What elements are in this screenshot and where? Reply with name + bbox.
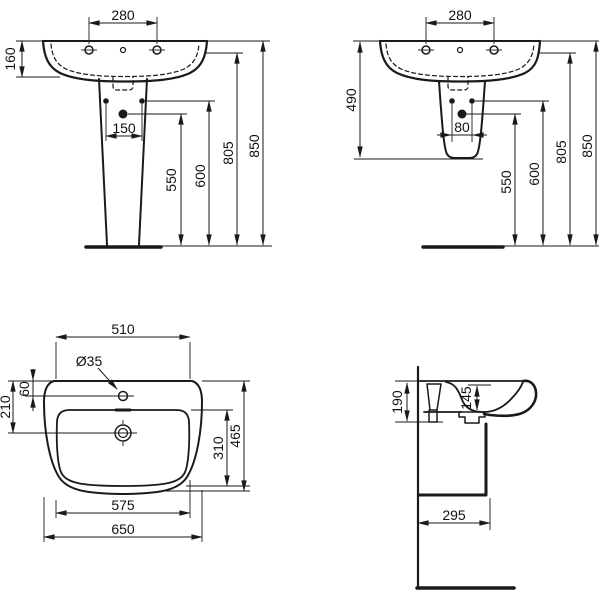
basin-inner-rim-dashed	[386, 44, 534, 77]
dim-label-outlet-offset: 210	[0, 395, 13, 419]
outlet-point	[458, 110, 467, 119]
drawing-canvas: 280 160 150 550 600 805 850	[0, 0, 600, 600]
dim-label-taphole-diameter: Ø35	[76, 353, 103, 369]
view-front-full-pedestal: 280 160 150 550 600 805 850	[2, 7, 272, 247]
dim-label-top-width: 510	[111, 321, 135, 337]
dim-label-overall-depth: 465	[227, 424, 243, 448]
dim-label-taphole-spacing: 280	[111, 7, 135, 23]
view-plan: 510 Ø35 60 210 310 465 575 650	[0, 321, 250, 542]
dim-label-rim-height: 850	[246, 134, 262, 158]
dim-label-front-height: 160	[2, 47, 18, 71]
semi-pedestal-profile	[419, 424, 486, 495]
fixing-hole-right	[469, 98, 475, 104]
dim-label-depth-projection: 295	[442, 507, 466, 523]
pedestal-left-edge	[99, 79, 107, 245]
fixing-hole-left	[449, 98, 455, 104]
dim-label-rim-height: 850	[579, 134, 595, 158]
dim-label-taphole-height: 805	[220, 141, 236, 165]
dim-label-pedestal-height: 490	[343, 88, 359, 112]
dim-label-overall-width: 650	[111, 521, 135, 537]
overflow-hole	[121, 48, 126, 53]
technical-drawing: 280 160 150 550 600 805 850	[0, 0, 600, 600]
fixing-hole-right	[139, 98, 145, 104]
pedestal-right-edge	[139, 79, 147, 245]
dim-label-fixing-height: 600	[192, 164, 208, 188]
basin-outline	[43, 41, 207, 82]
waste-dashed	[448, 77, 468, 90]
dim-label-outlet-height: 550	[498, 170, 514, 194]
tap-channel	[427, 384, 441, 410]
view-front-semi-pedestal: 280 490 80 550 600 805 850	[343, 7, 599, 247]
dim-label-outlet-spacing: 150	[112, 120, 136, 136]
dim-label-bowl-depth: 310	[210, 436, 226, 460]
waste-trap	[459, 412, 485, 423]
view-side-section: 190 145 295	[389, 367, 536, 588]
dim-label-outlet-height: 550	[163, 168, 179, 192]
dim-label-taphole-height: 805	[553, 140, 569, 164]
dim-label-bowl-inner-depth: 145	[458, 386, 474, 410]
dim-label-taphole-offset: 60	[16, 381, 32, 397]
dim-label-fixing-height: 600	[526, 162, 542, 186]
dim-label-taphole-spacing: 280	[448, 7, 472, 23]
fixing-hole-left	[103, 98, 109, 104]
dim-label-bowl-width: 575	[111, 497, 135, 513]
waste-dashed	[113, 77, 133, 90]
overflow-hole	[458, 48, 463, 53]
taphole-leader-line	[98, 368, 117, 389]
dim-label-outlet-spacing: 80	[454, 119, 470, 135]
outlet-point	[119, 110, 128, 119]
dim-label-back-height: 190	[389, 390, 405, 414]
